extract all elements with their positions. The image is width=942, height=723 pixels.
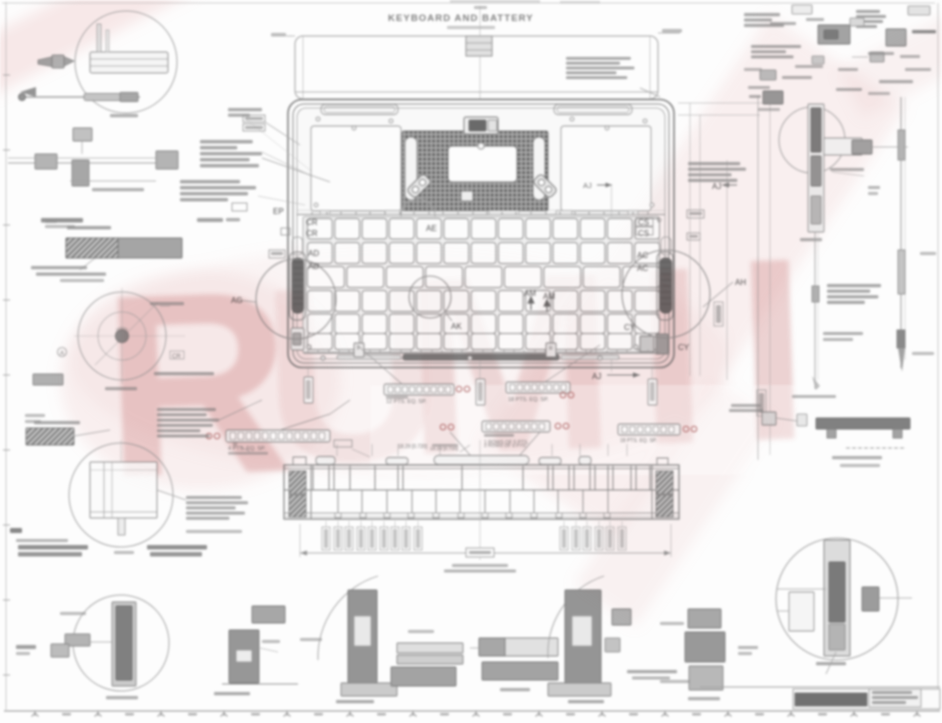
svg-text:AM: AM bbox=[543, 292, 555, 301]
svg-text:KEYBOARD AND BATTERY: KEYBOARD AND BATTERY bbox=[388, 13, 534, 24]
svg-text:12 PTS. EQ. SP.: 12 PTS. EQ. SP. bbox=[386, 399, 427, 405]
svg-text:AJ: AJ bbox=[583, 181, 592, 190]
svg-text:AC: AC bbox=[637, 251, 648, 260]
svg-text:D: D bbox=[657, 217, 662, 224]
svg-text:AE: AE bbox=[426, 224, 437, 233]
svg-text:AD: AD bbox=[308, 249, 319, 258]
svg-text:AD: AD bbox=[308, 262, 319, 271]
svg-text:AK: AK bbox=[451, 322, 462, 331]
svg-text:2 ROWS OF 5 PTS.: 2 ROWS OF 5 PTS. bbox=[484, 443, 527, 449]
svg-text:CR: CR bbox=[306, 218, 318, 227]
svg-text:AM: AM bbox=[524, 289, 536, 298]
svg-text:AG: AG bbox=[231, 296, 243, 305]
svg-text:AH: AH bbox=[735, 278, 746, 287]
svg-text:CY: CY bbox=[678, 343, 690, 352]
svg-text:18 PTS. EQ. SP.: 18 PTS. EQ. SP. bbox=[508, 397, 549, 403]
svg-text:CR: CR bbox=[306, 229, 318, 238]
svg-text:AJ: AJ bbox=[592, 372, 601, 381]
svg-text:M: M bbox=[233, 442, 237, 448]
svg-text:18.29 [0.720]: 18.29 [0.720] bbox=[430, 446, 458, 452]
svg-text:AJ: AJ bbox=[712, 182, 721, 191]
svg-text:R: R bbox=[549, 346, 553, 352]
svg-text:CY: CY bbox=[624, 323, 636, 332]
svg-text:EP: EP bbox=[273, 207, 284, 216]
svg-text:CS: CS bbox=[638, 229, 649, 238]
svg-text:AC: AC bbox=[637, 264, 648, 273]
svg-text:18.29 [0.720]: 18.29 [0.720] bbox=[398, 444, 428, 450]
svg-text:18 PTS. EQ. SP.: 18 PTS. EQ. SP. bbox=[620, 438, 657, 444]
